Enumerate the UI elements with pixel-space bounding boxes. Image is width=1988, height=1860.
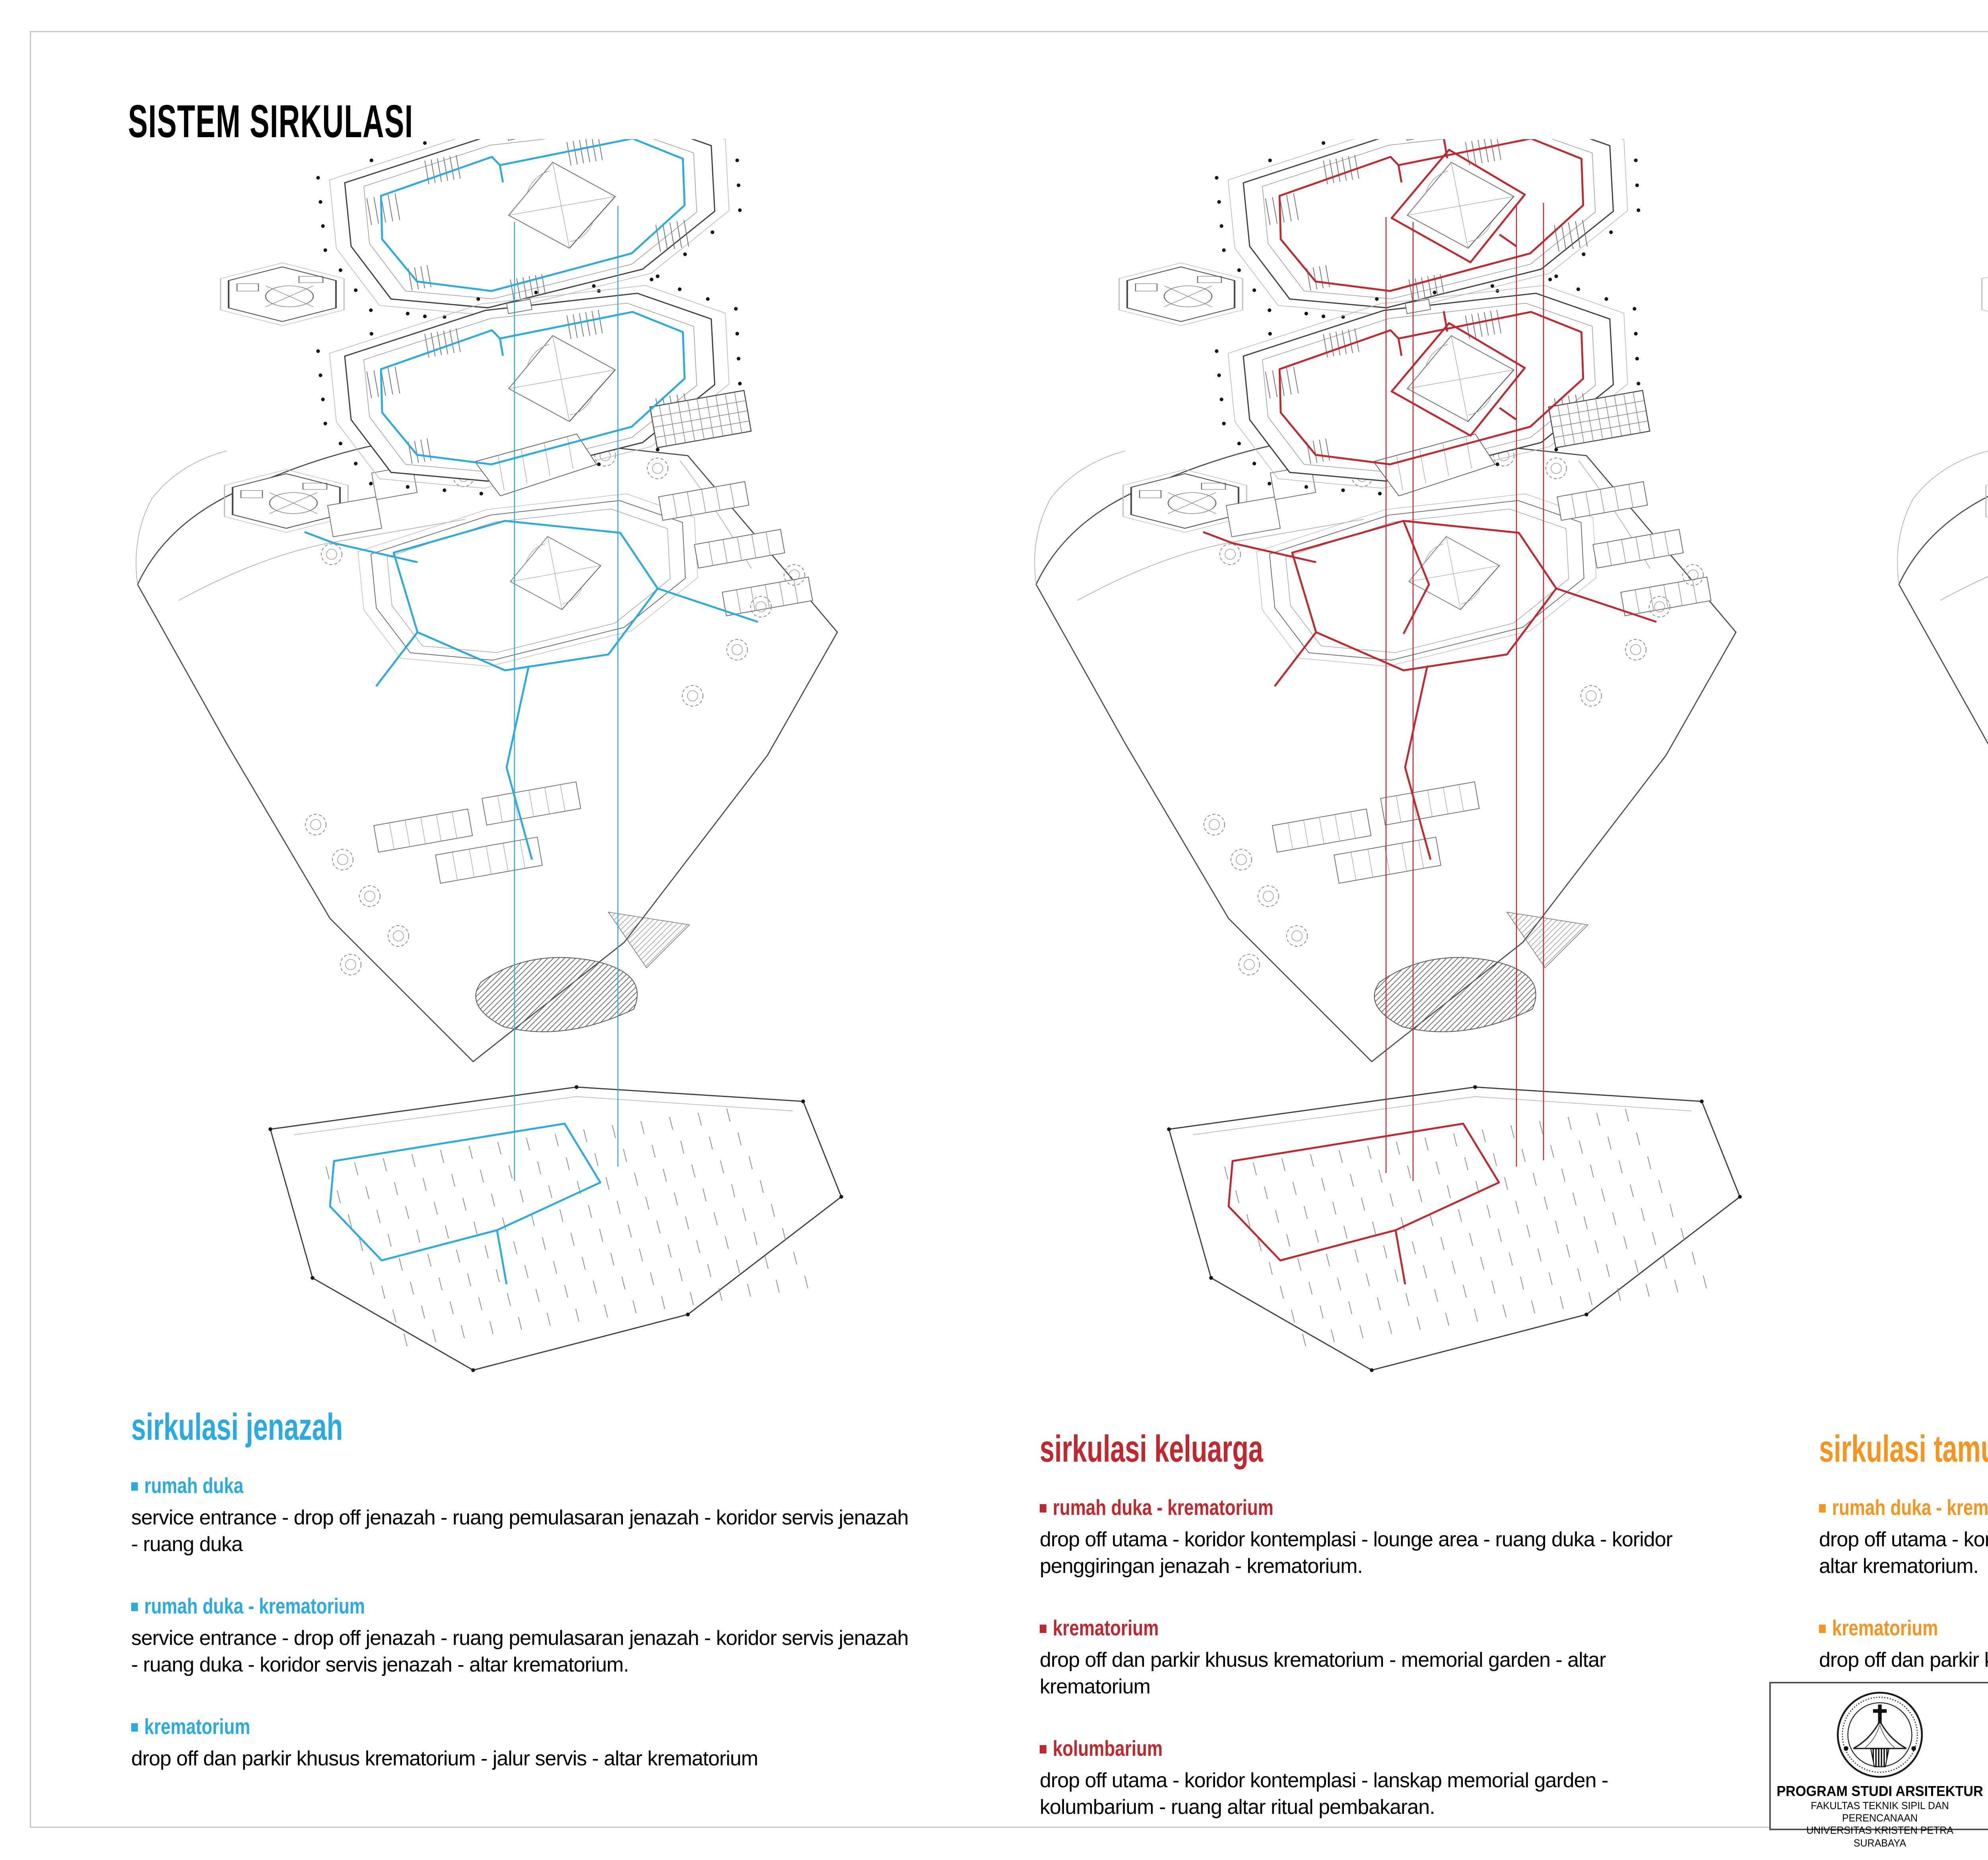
legend-item-label: rumah duka - krematorium: [144, 1594, 365, 1618]
legend-item: rumah duka - krematorium drop off utama …: [1040, 1495, 1716, 1579]
legend-sirkulasi-tamu: sirkulasi tamu rumah duka - krematorium …: [1819, 1427, 1988, 1709]
legend-item-label: rumah duka - krematorium: [1832, 1495, 1988, 1520]
legend-item-label: rumah duka - krematorium: [1053, 1495, 1274, 1520]
exploded-axonometric-diagram-jenazah: [131, 139, 855, 1380]
legend-item: kolumbarium drop off utama - koridor kon…: [1040, 1736, 1716, 1820]
legend-item-label: kolumbarium: [1053, 1736, 1163, 1761]
bullet-square-icon: [131, 1723, 138, 1732]
title-block-institution-cell: PROGRAM STUDI ARSITEKTUR FAKULTAS TEKNIK…: [1771, 1683, 1988, 1829]
legend-item-text: service entrance - drop off jenazah - ru…: [131, 1505, 911, 1557]
title-block: PROGRAM STUDI ARSITEKTUR FAKULTAS TEKNIK…: [1769, 1682, 1988, 1830]
circulation-diagram-svg: [1030, 139, 1753, 1380]
legend-item-text: drop off dan parkir khusus krematorium -…: [1819, 1647, 1988, 1674]
circulation-diagram-svg: [131, 139, 855, 1380]
university-name: UNIVERSITAS KRISTEN PETRA: [1775, 1824, 1984, 1837]
bullet-square-icon: [131, 1603, 138, 1611]
legend-item: krematorium drop off dan parkir khusus k…: [131, 1714, 911, 1772]
program-name: PROGRAM STUDI ARSITEKTUR: [1776, 1783, 1984, 1800]
legend-item-label: krematorium: [144, 1714, 250, 1739]
presentation-sheet: { "page": { "title": "SISTEM SIRKULASI" …: [0, 0, 1988, 1860]
legend-item: rumah duka - krematorium drop off utama …: [1819, 1495, 1988, 1579]
circulation-diagram-svg: [1893, 139, 1988, 1380]
bullet-square-icon: [1040, 1504, 1046, 1512]
legend-item-text: drop off utama - koridor kontemplasi - l…: [1819, 1526, 1988, 1579]
bullet-square-icon: [1040, 1745, 1046, 1753]
bullet-square-icon: [1819, 1625, 1826, 1633]
bullet-square-icon: [1040, 1625, 1046, 1633]
legend-heading: sirkulasi tamu: [1819, 1427, 1988, 1471]
legend-heading: sirkulasi keluarga: [1040, 1427, 1513, 1471]
legend-item-text: drop off utama - koridor kontemplasi - l…: [1040, 1526, 1716, 1579]
legend-item-text: service entrance - drop off jenazah - ru…: [131, 1625, 911, 1678]
legend-sirkulasi-keluarga: sirkulasi keluarga rumah duka - kremator…: [1040, 1427, 1716, 1856]
legend-item: rumah duka - krematorium service entranc…: [131, 1593, 911, 1678]
exploded-axonometric-diagram-keluarga: [1030, 139, 1753, 1380]
legend-sirkulasi-jenazah: sirkulasi jenazah rumah duka service ent…: [131, 1406, 911, 1808]
legend-heading: sirkulasi jenazah: [131, 1406, 677, 1449]
legend-item-label: krematorium: [1832, 1615, 1938, 1640]
legend-item: rumah duka service entrance - drop off j…: [131, 1473, 911, 1557]
legend-item-label: rumah duka: [144, 1473, 243, 1498]
exploded-axonometric-diagram-tamu: [1893, 139, 1988, 1380]
city-name: SURABAYA: [1775, 1837, 1984, 1849]
bullet-square-icon: [131, 1482, 138, 1491]
legend-item-text: drop off dan parkir khusus krematorium -…: [131, 1745, 911, 1772]
legend-item: krematorium drop off dan parkir khusus k…: [1040, 1615, 1716, 1700]
faculty-name: FAKULTAS TEKNIK SIPIL DAN PERENCANAAN: [1775, 1800, 1984, 1824]
legend-item-label: krematorium: [1053, 1615, 1159, 1640]
universitas-kristen-petra-seal-icon: [1834, 1689, 1926, 1780]
bullet-square-icon: [1819, 1504, 1826, 1512]
legend-item-text: drop off dan parkir khusus krematorium -…: [1040, 1647, 1716, 1700]
legend-item: krematorium drop off dan parkir khusus k…: [1819, 1615, 1988, 1674]
legend-item-text: drop off utama - koridor kontemplasi - l…: [1040, 1767, 1716, 1820]
